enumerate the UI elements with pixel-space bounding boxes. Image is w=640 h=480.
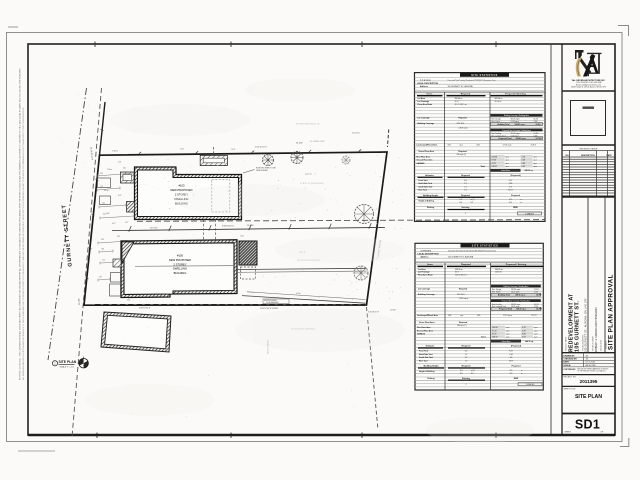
svg-text:8.9: 8.9 [471,202,473,204]
svg-text:TO BE REMOVED: TO BE REMOVED [266,302,279,304]
svg-text:GARAGE: GARAGE [417,333,426,336]
svg-text:128.41 sq.m: 128.41 sq.m [516,308,527,311]
svg-text:AS NOTED: AS NOTED [586,364,597,367]
svg-text:171.8 sq.m: 171.8 sq.m [503,144,512,146]
svg-text:0.28: 0.28 [522,327,526,329]
svg-text:8.9: 8.9 [510,373,513,375]
svg-text:EXISTING DWELLING No. 109: EXISTING DWELLING No. 109 [296,124,320,126]
svg-text:9.0: 9.0 [460,199,463,201]
svg-text:2011395: 2011395 [580,379,598,384]
svg-text:35 %: 35 % [455,101,459,103]
svg-text:EXISTING FENCE: EXISTING FENCE [264,300,277,302]
svg-text:Building Height: Building Height [423,194,438,197]
svg-text:Lot Area: Lot Area [418,97,427,100]
svg-text:Second Floor Area: Second Floor Area [417,329,434,332]
svg-text:171.8 sq.m: 171.8 sq.m [503,315,512,317]
svg-text:DATE:: DATE: [564,361,570,364]
svg-text:4.97: 4.97 [206,243,209,245]
svg-text:Proposed / Existing: Proposed / Existing [505,92,526,95]
svg-text:50%: 50% [477,315,481,317]
svg-text:128.41 sq.m: 128.41 sq.m [515,123,526,126]
svg-text:Lot Frontage: Lot Frontage [418,271,430,274]
svg-text:0.08: 0.08 [522,334,526,336]
svg-text:Front Yard: Front Yard [419,350,428,353]
svg-text:6.0: 6.0 [465,351,468,353]
svg-text:4.97: 4.97 [99,277,102,279]
svg-text:CHECKED BY:: CHECKED BY: [564,359,578,361]
svg-text:Required: Required [461,175,470,177]
svg-text:128.41 sq.m: 128.41 sq.m [515,294,526,297]
svg-text:South Side Yard: South Side Yard [419,185,433,188]
svg-text:8.9: 8.9 [510,370,513,372]
svg-text:1.2: 1.2 [465,354,468,356]
svg-text:1.86: 1.86 [106,213,109,215]
svg-text:3.05: 3.05 [100,173,103,175]
svg-text:Indoor Area: Indoor Area [501,169,510,172]
svg-text:12.9%: 12.9% [536,124,541,126]
svg-text:N 34°07'40" E: N 34°07'40" E [139,308,151,310]
svg-text:2: 2 [466,384,467,386]
svg-text:Detached Third Density Residen: Detached Third Density Residential R3-SN… [448,250,496,253]
svg-text:12.79%: 12.79% [536,309,542,311]
svg-text:Detached Third Density Residen: Detached Third Density Residential R3-SN… [448,79,496,82]
svg-text:Indoor Area: Indoor Area [502,340,511,343]
svg-text:103.68: 103.68 [492,156,498,158]
svg-text:905 841 0123: 905 841 0123 [601,340,603,351]
svg-text:SHEET TITLE: SHEET TITLE [564,389,577,391]
svg-text:Required: Required [461,195,470,197]
svg-text:Second Floor Area: Second Floor Area [417,159,434,162]
svg-text:6.0 m: 6.0 m [104,190,109,192]
svg-text:North Side Yard: North Side Yard [419,182,432,185]
svg-text:Proposed / Existing: Proposed / Existing [506,263,527,266]
svg-text:110 % 365.1 m²: 110 % 365.1 m² [455,103,468,106]
svg-text:Items: Items [427,263,433,266]
svg-text:6.40: 6.40 [103,214,106,216]
svg-text:2: 2 [465,213,466,215]
svg-text:16.03: 16.03 [240,236,244,238]
svg-text:24.29M: 24.29M [247,225,254,227]
svg-text:SD1: SD1 [575,418,600,432]
svg-text:Lot Coverage: Lot Coverage [418,287,430,290]
svg-text:New Dwelling: New Dwelling [492,133,502,135]
svg-text:0.28: 0.28 [522,330,526,332]
svg-text:0.28: 0.28 [522,156,526,158]
svg-text:50%: 50% [448,144,452,146]
svg-text:Lot Frontage: Lot Frontage [418,100,430,103]
svg-text:71.8 %: 71.8 % [531,144,537,146]
svg-text:(Proposed): (Proposed) [511,175,521,177]
svg-text:2 SPACES: 2 SPACES [526,383,535,386]
svg-text:JG: JG [586,355,589,357]
svg-text:6.37: 6.37 [509,351,513,353]
svg-text:128.41 sq.m: 128.41 sq.m [516,137,527,140]
svg-text:105 GURNETT ST., AURORA, ON L4: 105 GURNETT ST., AURORA, ON L4G 1P7 [584,298,587,352]
svg-text:4.8: 4.8 [509,186,512,188]
svg-text:First Floor Area: First Floor Area [417,326,431,329]
svg-text:Required: Required [459,322,468,324]
svg-text:m (?): m (?) [471,370,475,372]
svg-text:110.8 m²: 110.8 m² [495,100,502,103]
svg-text:16.76: 16.76 [231,149,235,151]
svg-text:0.08: 0.08 [522,163,526,165]
svg-text:NEW: NEW [513,207,518,209]
svg-text:N 34°07'40" E: N 34°07'40" E [222,225,235,227]
svg-text:NEW: NEW [514,378,519,380]
svg-text:0.92: 0.92 [117,236,120,238]
svg-text:6.0: 6.0 [464,180,467,182]
svg-text:1.86: 1.86 [509,354,513,356]
svg-text:368.08 m²: 368.08 m² [455,268,463,271]
svg-text:N 56°10'20" E: N 56°10'20" E [255,147,268,149]
svg-text:Total: Total [481,165,486,168]
svg-text:0.64: 0.64 [522,337,526,339]
svg-text:6.78m: 6.78m [296,293,301,295]
svg-text:47.31: 47.31 [492,163,497,165]
svg-text:SCALE:: SCALE: [564,364,572,367]
svg-text:Building Coverage / Building A: Building Coverage / Building Area [504,114,529,117]
svg-text:Required: Required [462,366,471,368]
svg-text:1.22: 1.22 [100,186,103,188]
svg-text:Proposed Total: Proposed Total [499,137,512,140]
svg-text:SITE PLAN: SITE PLAN [575,394,602,400]
svg-text:DESCRIPTION: DESCRIPTION [581,155,595,157]
svg-text:8.9: 8.9 [509,199,512,201]
svg-text:7.36 m: 7.36 m [107,169,113,171]
svg-text:Height of Building: Height of Building [419,370,434,373]
svg-text:5.64: 5.64 [118,162,121,164]
svg-text:47.31: 47.31 [492,334,497,336]
svg-text:PROJECT NO:: PROJECT NO: [564,377,577,379]
svg-text:110 % 365.1 m²: 110 % 365.1 m² [455,274,468,277]
svg-text:Required: Required [459,288,468,290]
svg-text:6.37: 6.37 [118,195,121,197]
svg-text:71.8 %: 71.8 % [531,315,537,317]
svg-text:DWELLING: DWELLING [173,267,187,271]
svg-text:Gross Floor Area: Gross Floor Area [419,321,435,324]
svg-text:Building Height: Building Height [424,365,439,368]
svg-text:1.2: 1.2 [465,357,468,359]
svg-text:185 sq.m (?): 185 sq.m (?) [457,154,467,156]
svg-text:#105: #105 [177,254,183,258]
svg-text:2.44: 2.44 [102,203,105,205]
svg-text:35 %: 35 % [455,272,459,274]
svg-text:PROJECT NAME: PROJECT NAME [565,336,568,351]
svg-text:16.97: 16.97 [508,190,513,192]
svg-text:Required: Required [459,151,468,153]
svg-text:SITE STATISTICS: SITE STATISTICS [472,245,498,248]
svg-text:6.37: 6.37 [509,180,513,182]
svg-text:2.90: 2.90 [127,300,130,302]
svg-text:2 SPACES: 2 SPACES [525,212,534,215]
svg-text:16487 Yonge St. Unit 21, Auror: 16487 Yonge St. Unit 21, Aurora, ON L4G … [571,85,606,88]
svg-text:Parking: Parking [427,207,435,209]
svg-text:8.9: 8.9 [471,373,473,375]
svg-text:128.8 sq.m.: 128.8 sq.m. [459,127,469,129]
svg-text:Building Total: Building Total [498,123,510,126]
svg-text:368.08 m²: 368.08 m² [495,268,503,271]
svg-text:12.19: 12.19 [180,149,184,151]
svg-text:ALL DRAWINGS AND SPECIFICATION: ALL DRAWINGS AND SPECIFICATIONS ARE INST… [22,107,25,380]
svg-text:Required: Required [462,346,471,348]
svg-text:REDEVELOPMENT AT: REDEVELOPMENT AT [568,293,574,352]
svg-text:7.5: 7.5 [465,360,468,362]
svg-text:REVISION / ISSUE: REVISION / ISSUE [580,148,599,150]
svg-text:3.05: 3.05 [101,239,104,241]
svg-text:2.13: 2.13 [102,260,105,262]
svg-text:8.9: 8.9 [509,202,512,204]
svg-text:Landscaped/Paved Area: Landscaped/Paved Area [417,314,439,317]
svg-text:Proposed: Proposed [512,366,522,368]
svg-text:0.64: 0.64 [522,166,526,168]
svg-text:Proposed: Proposed [511,195,521,197]
svg-text:Lot Coverage: Lot Coverage [418,117,430,120]
svg-text:8.9: 8.9 [460,202,463,204]
svg-text:ROBERT & SANDRA MASTRONARDI: ROBERT & SANDRA MASTRONARDI [595,307,598,352]
svg-text:(16.76m): (16.76m) [352,133,360,135]
svg-text:NO.: NO. [566,155,570,157]
svg-text:Height of Building: Height of Building [419,199,434,202]
svg-text:North Side Yard: North Side Yard [419,353,432,356]
svg-text:SITE PLAN APPROVAL: SITE PLAN APPROVAL [608,274,615,350]
svg-text:JG: JG [586,359,589,361]
svg-text:103.68: 103.68 [492,327,498,329]
svg-text:9.0: 9.0 [460,370,463,372]
svg-text:Lot Area: Lot Area [418,268,427,271]
svg-text:Building Coverage: Building Coverage [418,294,435,296]
svg-text:New Dwelling: New Dwelling [492,304,502,306]
svg-text:Required: Required [459,118,468,120]
svg-text:368.08 m²: 368.08 m² [495,97,503,100]
svg-text:Setbacks: Setbacks [425,174,435,177]
svg-text:7.5: 7.5 [464,190,467,192]
svg-text:248.32 sq.: 248.32 sq. [525,340,534,343]
svg-text:35% 35%: 35% 35% [457,123,465,125]
svg-text:Building Total: Building Total [498,294,510,297]
svg-text:Gross Floor Area: Gross Floor Area [419,150,435,153]
svg-text:DRAWN BY:: DRAWN BY: [564,354,576,357]
svg-text:Items: Items [427,92,433,95]
svg-text:1.07: 1.07 [125,222,128,224]
svg-text:248.32: 248.32 [492,166,498,168]
svg-text:12.9%: 12.9% [536,295,541,297]
svg-text:97.33: 97.33 [492,160,497,162]
svg-text:248.32 sq.: 248.32 sq. [525,169,534,172]
svg-text:4.8: 4.8 [510,357,513,359]
svg-text:128.8 sq.m.: 128.8 sq.m. [459,298,469,300]
svg-text:1.2: 1.2 [464,183,467,185]
svg-text:Building Coverage: Building Coverage [418,123,435,125]
svg-text:0.28: 0.28 [522,160,526,162]
svg-text:110.8 m²: 110.8 m² [495,271,502,274]
svg-text:Parking: Parking [427,378,435,380]
svg-text:Existing: Existing [462,377,471,380]
svg-text:Floor Area Ratio: Floor Area Ratio [418,274,433,277]
svg-text:South Side Yard: South Side Yard [419,356,433,359]
svg-text:(Proposed): (Proposed) [511,346,521,348]
svg-text:N 34°07'40" E 24.29M: N 34°07'40" E 24.29M [260,308,278,310]
svg-text:PLOTTED: OCT.25.2021 - THE C: PLOTTED: OCT.25.2021 - THE CONTRACTOR SH… [19,68,22,380]
svg-text:12.79%: 12.79% [536,138,542,140]
svg-text:185 sq.m (?): 185 sq.m (?) [457,325,467,327]
svg-text:105 GURNETT ST.: 105 GURNETT ST. [575,301,581,352]
svg-text:Front Yard: Front Yard [419,179,428,182]
svg-text:Existing: Existing [462,206,471,209]
svg-text:m (?): m (?) [471,199,475,201]
svg-text:38.10M: 38.10M [296,143,303,145]
svg-text:50%: 50% [448,315,452,317]
svg-text:97.33: 97.33 [492,330,497,332]
svg-text:34°07'40": 34°07'40" [150,227,158,229]
svg-text:2 STOREY: 2 STOREY [173,262,186,266]
svg-text:First Floor Area: First Floor Area [417,155,431,158]
svg-text:GARAGE: GARAGE [417,162,426,165]
svg-text:368.08 m²: 368.08 m² [455,97,463,100]
svg-text:OCT. 2021: OCT. 2021 [586,362,596,364]
svg-text:#103: #103 [179,184,185,188]
svg-text:PROJECT OWNER: PROJECT OWNER [593,335,595,351]
svg-text:LOT 5: LOT 5 [305,173,312,176]
svg-text:DEMOLISHED: DEMOLISHED [256,170,269,172]
svg-text:SITE PLAN: SITE PLAN [59,360,77,364]
svg-text:50%: 50% [477,144,481,146]
svg-text:SCALE: 1" = 10': SCALE: 1" = 10' [60,365,75,368]
svg-text:1.86: 1.86 [509,183,513,185]
svg-text:Setbacks: Setbacks [426,345,436,348]
svg-text:35% 35%: 35% 35% [457,294,465,296]
svg-text:248.32: 248.32 [492,337,498,339]
svg-text:7.36 m: 7.36 m [112,151,118,153]
svg-text:Landscaped/Paved Area: Landscaped/Paved Area [417,143,439,146]
svg-text:BUILDING: BUILDING [174,271,187,275]
svg-text:Total: Total [481,336,486,339]
svg-text:1.2: 1.2 [464,186,467,188]
svg-text:COPYRIGHT:: COPYRIGHT: [564,369,577,371]
svg-text:SITE STATISTICS: SITE STATISTICS [471,74,497,77]
svg-text:24.39M: 24.39M [390,310,396,312]
svg-text:Rear Yard: Rear Yard [419,190,427,192]
svg-text:4.97: 4.97 [112,223,115,225]
svg-text:Building Coverage / Building A: Building Coverage / Building Area [503,285,528,288]
svg-text:Proposed Total: Proposed Total [499,308,512,311]
svg-text:Floor Area Ratio: Floor Area Ratio [418,103,433,106]
svg-text:16.97: 16.97 [509,360,514,362]
svg-text:SHEET: SHEET [565,431,572,433]
svg-text:Rear Yard: Rear Yard [419,360,427,362]
svg-text:NEW PROPOSED: NEW PROPOSED [169,258,191,262]
svg-text:0.61: 0.61 [123,168,126,170]
svg-text:1.86: 1.86 [101,249,104,251]
svg-text:8.9: 8.9 [460,373,463,375]
